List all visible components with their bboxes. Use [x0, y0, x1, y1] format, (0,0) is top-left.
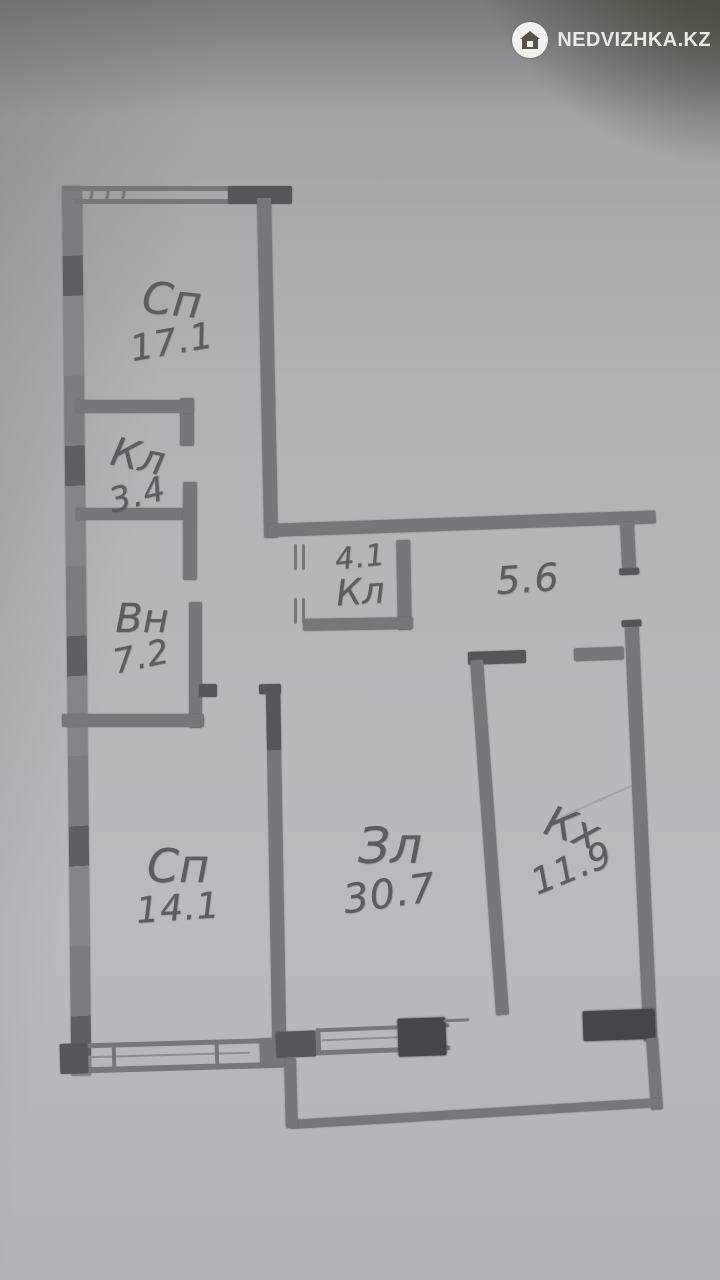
room-label-living-room: Зл 30.7 — [330, 820, 450, 915]
wall-pier-block — [397, 1017, 446, 1057]
house-icon-window — [527, 41, 533, 47]
room-label-hallway: 5.6 — [468, 560, 588, 600]
room-area: 14.1 — [135, 887, 222, 931]
room-label-bedroom-top: Сп 17.1 — [112, 278, 232, 362]
room-area: 5.6 — [495, 558, 561, 602]
room-area: 3.4 — [106, 472, 170, 520]
wall-corner-block — [60, 1043, 89, 1074]
closet-top-wall — [76, 400, 194, 413]
window-wall-bottom-left — [60, 1038, 285, 1074]
wall-segment — [276, 1030, 317, 1058]
wall-line — [60, 1062, 284, 1074]
wall-segment — [620, 522, 636, 569]
door-jamb — [294, 598, 297, 624]
wall-segment — [574, 647, 624, 662]
room-area: 17.1 — [127, 317, 216, 369]
wall-segment — [397, 1017, 446, 1057]
house-icon-body — [522, 39, 538, 49]
room-label-closet-small: Кл 3.4 — [78, 436, 198, 514]
watermark: NEDVIZHKA.KZ — [512, 22, 711, 58]
bathroom-bottom-wall — [62, 714, 204, 727]
window-tick — [112, 1042, 117, 1072]
watermark-brand: NEDVIZHKA.KZ — [557, 29, 711, 52]
window-tick — [215, 1040, 220, 1070]
room-area: 7.2 — [110, 634, 173, 681]
bedroom-top-right-wall — [257, 198, 278, 538]
room-label-closet-hall: 4.1 Кл — [300, 542, 420, 611]
house-icon-roof — [520, 31, 540, 39]
door-jamb — [294, 544, 297, 570]
room-abbr: Зл — [358, 820, 422, 873]
door-jamb — [619, 567, 639, 575]
wall-line — [443, 1018, 469, 1022]
floor-plan: Сп 17.1 Кл 3.4 Вн 7.2 4.1 Кл 5.6 Сп 14.1… — [0, 0, 720, 1280]
living-room-left-wall — [266, 686, 287, 1062]
paper-background: Сп 17.1 Кл 3.4 Вн 7.2 4.1 Кл 5.6 Сп 14.1… — [0, 0, 720, 1280]
balcony-bottom-wall — [290, 1098, 662, 1129]
room-abbr: Кл — [334, 572, 385, 613]
door-jamb — [199, 684, 217, 697]
door-jamb — [259, 684, 281, 694]
kitchen-top-wall — [468, 647, 624, 665]
room-label-kitchen: Кх 11.9 — [512, 806, 632, 888]
balcony-left-wall — [284, 1058, 298, 1128]
room-area: 30.7 — [341, 866, 439, 921]
hall-closet-bottom-wall — [303, 617, 413, 631]
kitchen-bottom-wall — [582, 1009, 655, 1041]
window-tick — [315, 1028, 321, 1055]
room-label-bedroom-left: Сп 14.1 — [118, 842, 238, 928]
kitchen-left-wall — [470, 659, 509, 1015]
room-area: 11.9 — [526, 836, 618, 903]
room-label-bathroom: Вн 7.2 — [82, 598, 202, 676]
hallway-top-wall — [268, 510, 656, 537]
wall-segment — [266, 686, 281, 750]
room-abbr: Сп — [147, 842, 209, 890]
wall-line — [60, 1038, 284, 1049]
house-icon — [512, 22, 548, 58]
